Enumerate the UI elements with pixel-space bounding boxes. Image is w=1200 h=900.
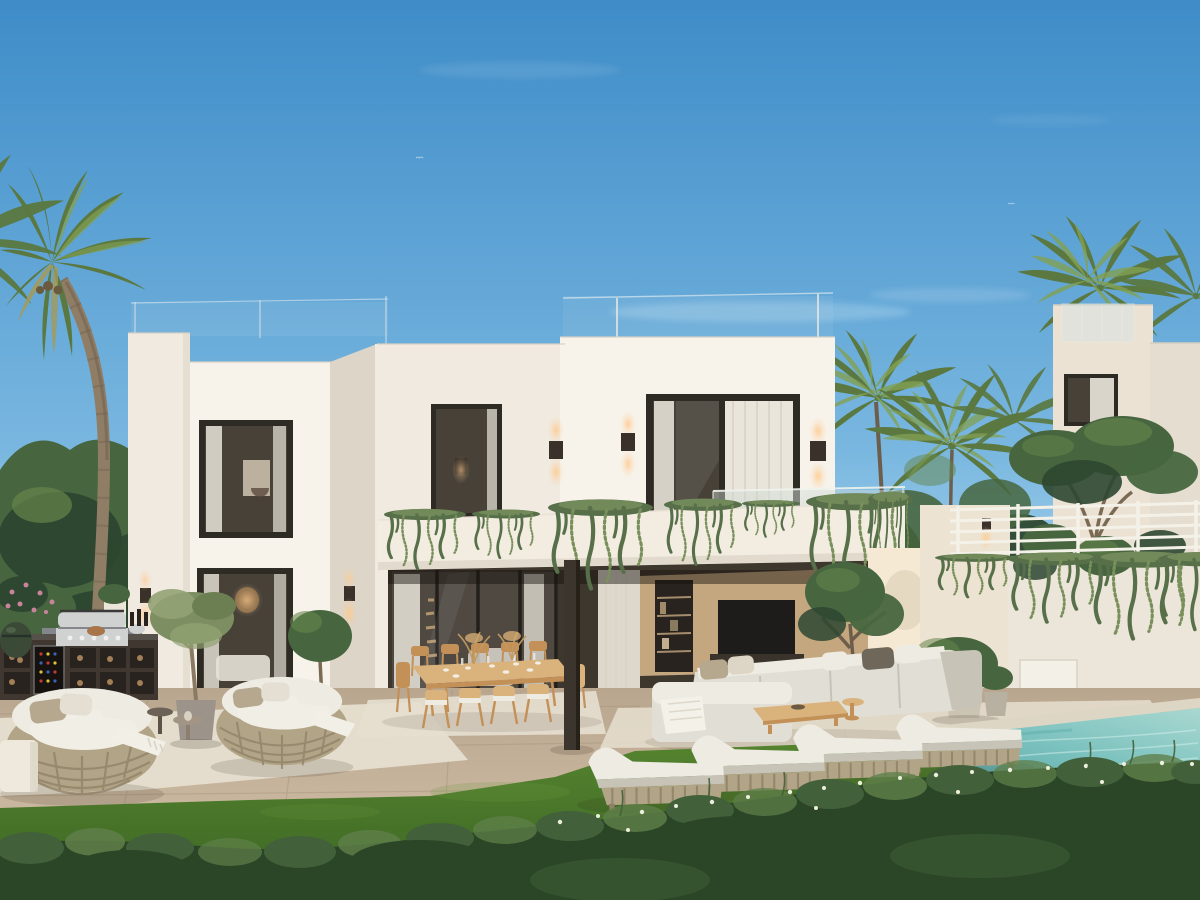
television bbox=[718, 600, 795, 654]
wine-fridge bbox=[34, 646, 64, 694]
round-daybed bbox=[211, 677, 356, 778]
stairwell-window bbox=[431, 404, 502, 518]
bedroom-window-upper-left bbox=[199, 420, 293, 538]
curtain bbox=[206, 426, 222, 532]
rooftop-glass-box bbox=[1062, 304, 1134, 342]
pillow bbox=[59, 693, 92, 716]
wall-sconce bbox=[549, 441, 563, 459]
white-cube-stool bbox=[0, 740, 38, 792]
scene-canvas bbox=[0, 0, 1200, 900]
rendered-villa-scene bbox=[0, 0, 1200, 900]
head-chair bbox=[396, 662, 410, 688]
kamado-grill bbox=[0, 622, 32, 658]
vase bbox=[184, 711, 192, 721]
terracotta-bowl bbox=[87, 626, 105, 636]
table-bowl bbox=[791, 704, 805, 709]
wall-sconce bbox=[621, 433, 635, 451]
wall-sconce bbox=[810, 441, 826, 461]
sheer-curtain bbox=[598, 570, 640, 704]
curtain bbox=[654, 401, 674, 511]
interior-bed bbox=[216, 655, 270, 681]
bookshelf bbox=[655, 580, 693, 672]
small-pot bbox=[984, 692, 1008, 716]
